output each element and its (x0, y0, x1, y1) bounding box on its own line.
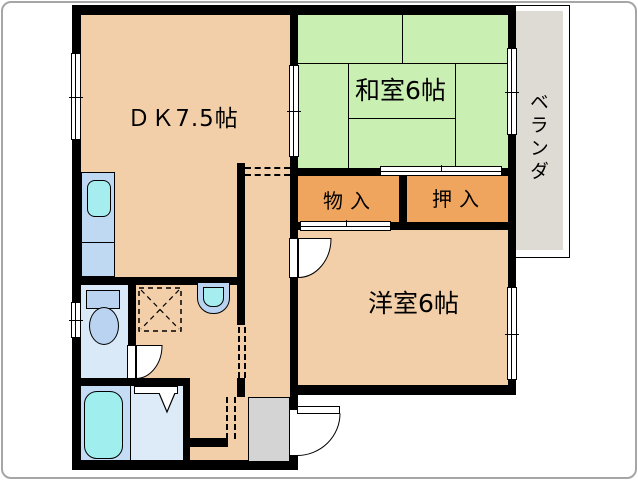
toilet-door-leaf (127, 345, 136, 379)
entrance-door-arc (297, 413, 342, 457)
bath-folding-door-v (158, 393, 178, 414)
wall-hall-lower (237, 378, 245, 397)
kitchen-sink-icon (87, 180, 111, 217)
kitchen-counter (81, 172, 115, 277)
dk-room-label: ＤＫ7.5帖 (108, 107, 258, 132)
toilet-door-arc (136, 345, 164, 380)
sliding-door-monoire (300, 221, 391, 231)
floorplan: ＤＫ7.5帖 和室6帖 洋室6帖 物入 押入 ベランダ (0, 0, 638, 480)
wash-basin-icon (197, 282, 230, 314)
open-boundary-dk-hall (245, 174, 290, 176)
window-washitsu-east (507, 48, 517, 135)
yoshitsu-door-leaf (289, 238, 298, 278)
window-yoshitsu-east (507, 287, 517, 380)
bathtub-icon (84, 391, 123, 459)
tatami-line (294, 63, 512, 64)
window-toilet-left (71, 302, 81, 338)
open-boundary-washroom-hall (244, 327, 246, 378)
entrance-step-boundary (234, 397, 236, 439)
entrance-step-boundary (226, 397, 228, 439)
wall-toilet-east (128, 283, 136, 345)
monoire-label: 物入 (296, 190, 397, 212)
shoe-cabinet-icon (248, 397, 290, 462)
tatami-line (348, 118, 455, 119)
washing-machine-pan-icon (138, 287, 182, 332)
window-dk-left (71, 53, 81, 140)
sliding-door-dk-washitsu (289, 65, 299, 157)
open-boundary-washroom-hall (238, 327, 240, 378)
wall-entrance-step (190, 438, 228, 447)
yoshitsu-room-label: 洋室6帖 (341, 290, 486, 318)
oshiire-label: 押入 (405, 188, 506, 210)
washitsu-room-label: 和室6帖 (328, 77, 473, 105)
toilet-bowl-icon (89, 307, 119, 345)
veranda-label: ベランダ (527, 92, 548, 184)
tatami-line (402, 10, 403, 63)
yoshitsu-door-arc (298, 238, 333, 279)
wall-hall-upper (237, 163, 245, 325)
sliding-door-oshiire (380, 166, 502, 176)
wall-washroom-south (72, 378, 190, 386)
wall-yoshitsu-south (290, 385, 516, 395)
open-boundary-dk-hall (245, 167, 290, 169)
wall-bath-east (183, 386, 190, 470)
